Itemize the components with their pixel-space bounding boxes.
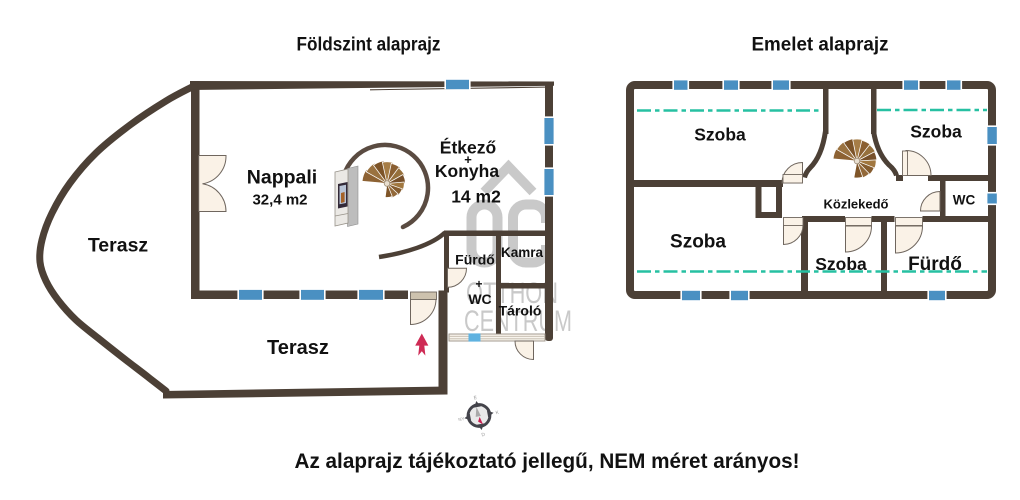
svg-text:WC: WC xyxy=(953,193,976,208)
svg-text:Földszint alaprajz: Földszint alaprajz xyxy=(297,35,441,56)
svg-text:Nappali: Nappali xyxy=(247,167,317,189)
svg-text:Emelet alaprajz: Emelet alaprajz xyxy=(752,35,889,56)
svg-text:Tároló: Tároló xyxy=(499,303,542,319)
svg-text:WC: WC xyxy=(468,291,491,307)
svg-text:Fürdő: Fürdő xyxy=(908,254,962,275)
svg-text:14 m2: 14 m2 xyxy=(451,187,501,207)
svg-text:Szoba: Szoba xyxy=(910,122,962,142)
svg-text:32,4 m2: 32,4 m2 xyxy=(252,192,307,209)
svg-text:Szoba: Szoba xyxy=(815,254,867,274)
svg-text:Közlekedő: Közlekedő xyxy=(823,197,888,212)
svg-text:Terasz: Terasz xyxy=(88,235,149,257)
svg-text:Terasz: Terasz xyxy=(267,337,329,359)
svg-text:Szoba: Szoba xyxy=(670,232,726,253)
svg-text:Az alaprajz tájékoztató jelleg: Az alaprajz tájékoztató jellegű, NEM mér… xyxy=(295,449,800,473)
svg-text:+: + xyxy=(475,277,482,291)
svg-text:Fürdő: Fürdő xyxy=(455,252,495,268)
svg-text:Kamra: Kamra xyxy=(501,245,544,260)
svg-text:Konyha: Konyha xyxy=(435,161,499,181)
svg-text:Szoba: Szoba xyxy=(694,125,746,145)
